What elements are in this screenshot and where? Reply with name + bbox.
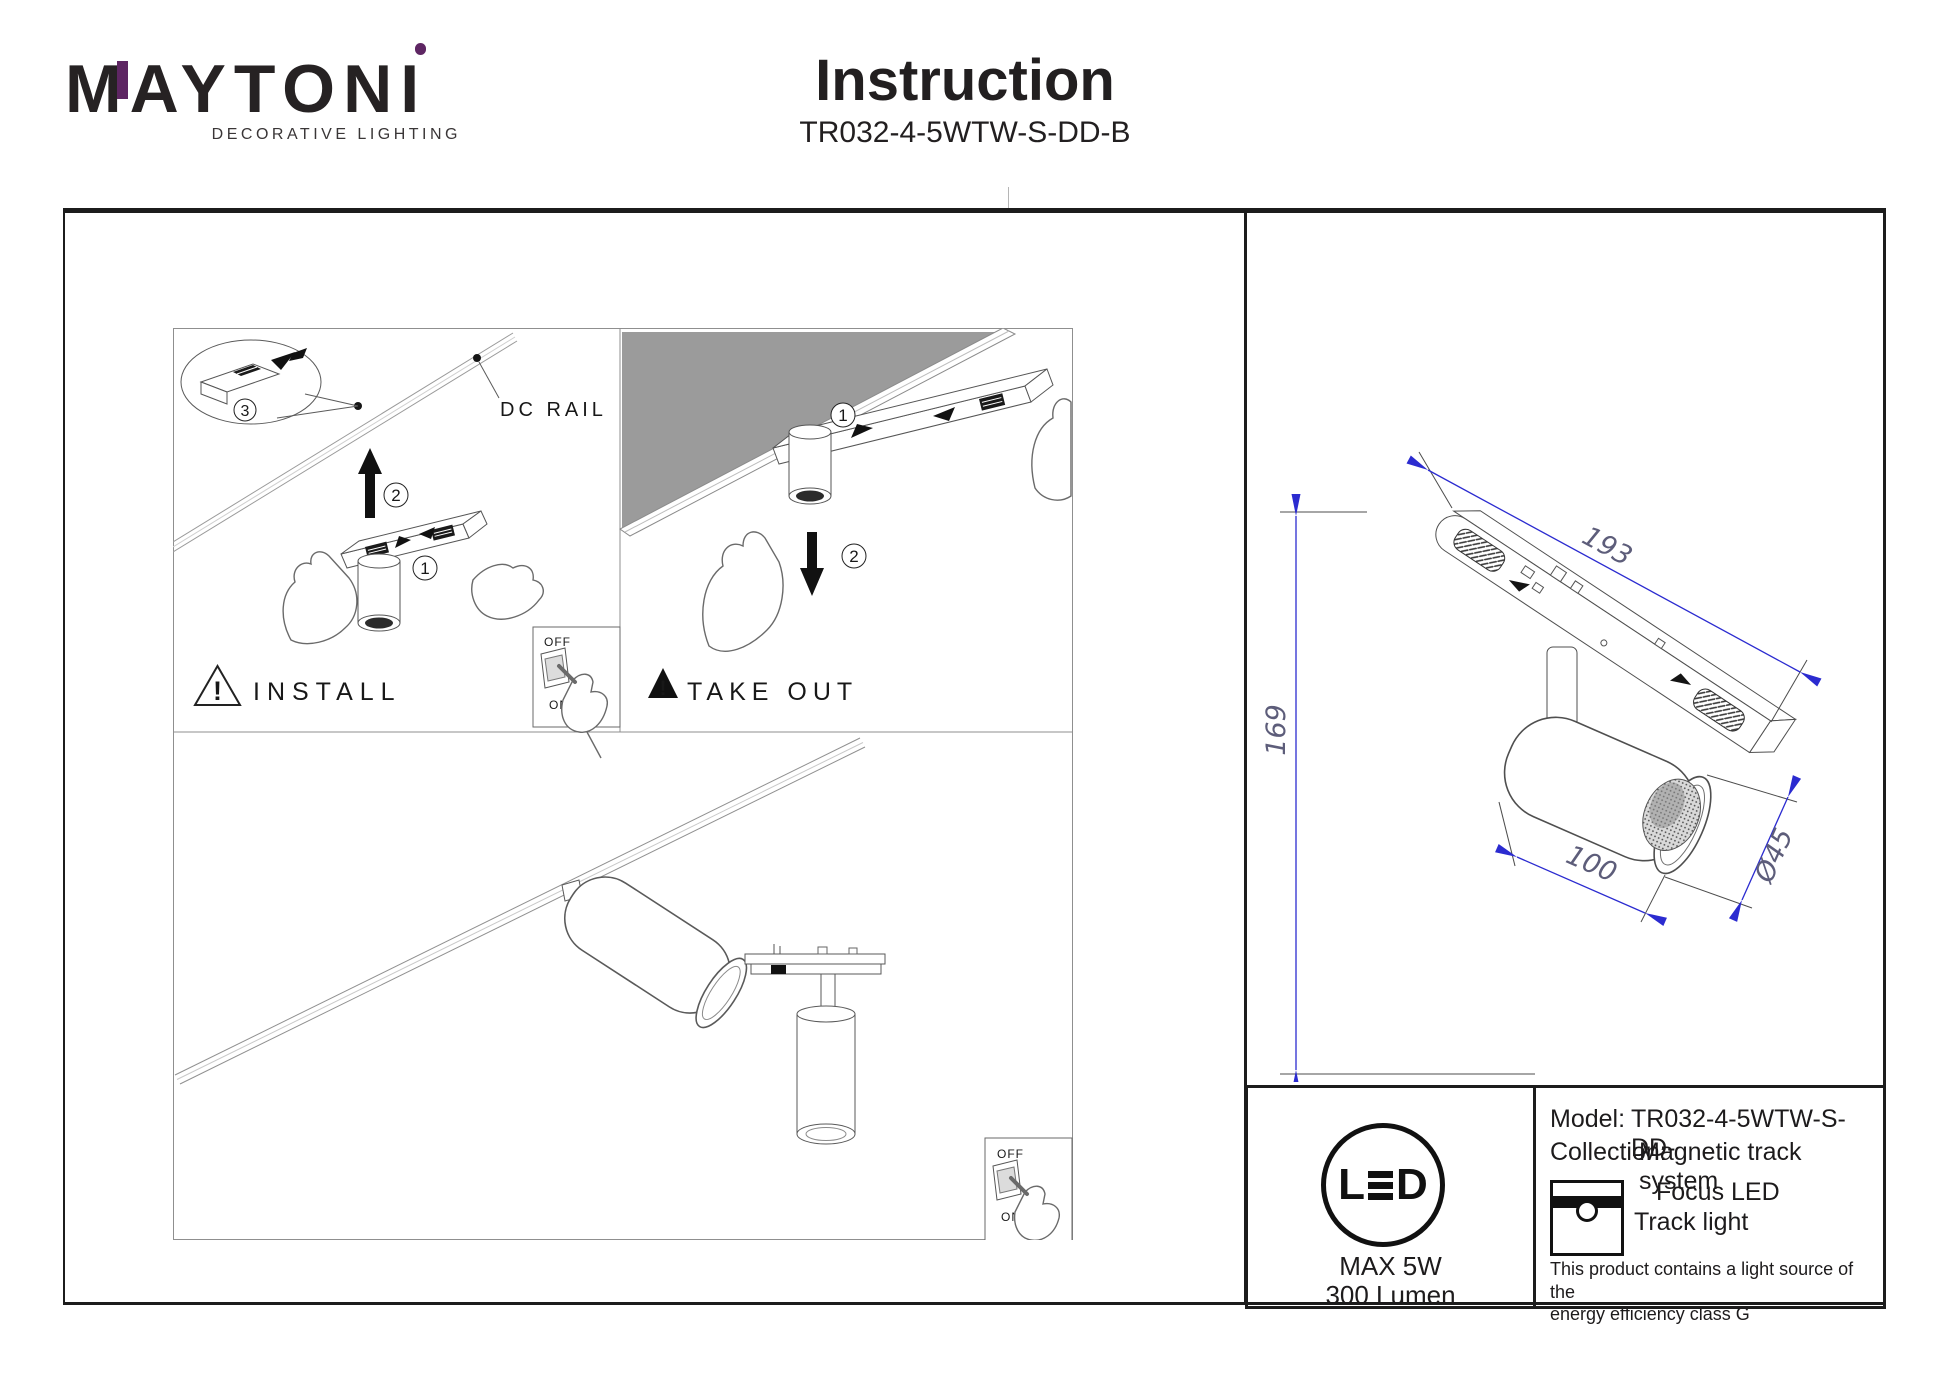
model-label: Model:: [1550, 1105, 1625, 1134]
spec-row: L D MAX 5W 300 Lumen Model: TR032-4-5WTW…: [1245, 1085, 1886, 1309]
step-1-number: 1: [838, 406, 847, 425]
dim-193: 193: [1419, 452, 1807, 722]
switch-off-inset: OFF ON: [533, 627, 620, 758]
install-label: INSTALL: [253, 678, 402, 706]
install-warning-mark: !: [213, 676, 222, 706]
product-line2: Track light: [1634, 1208, 1748, 1237]
spot-cylinder-sketch: [358, 554, 400, 631]
installation-diagram: 3 DC RAIL 2: [173, 328, 1073, 1240]
led-letter-d: D: [1396, 1160, 1428, 1210]
long-rail: [175, 738, 865, 1084]
spot-cylinder-sketch: [789, 425, 831, 504]
page-title: Instruction: [700, 52, 1230, 110]
logo-purple-stem: [117, 61, 127, 99]
max-power: MAX 5W: [1248, 1251, 1533, 1282]
logo-tagline: DECORATIVE LIGHTING: [65, 126, 461, 144]
switch-on-inset: OFF ON: [985, 1138, 1072, 1240]
fold-mark: [1008, 187, 1009, 208]
mounted-spotlight: [550, 862, 755, 1034]
model-code: TR032-4-5WTW-S-DD-B: [700, 116, 1230, 150]
dim-193-label: 193: [1577, 521, 1637, 573]
rocker-switch-icon: [993, 1160, 1021, 1200]
pendant-track-light: [745, 944, 885, 1144]
dc-rail-leader: [479, 362, 499, 398]
logo-letter-m: M: [65, 50, 130, 128]
led-spec-cell: L D MAX 5W 300 Lumen: [1248, 1088, 1536, 1306]
logo-letter-i: I: [400, 50, 427, 128]
step-2-number: 2: [391, 486, 400, 505]
magnifier-callout: 3: [181, 340, 358, 424]
arrow-down-icon: [800, 532, 824, 596]
dim-169: 169: [1261, 512, 1535, 1074]
lumen-value: 300 Lumen: [1248, 1280, 1533, 1311]
switch-off-label: OFF: [997, 1147, 1024, 1161]
led-letter-l: L: [1338, 1160, 1365, 1210]
logo-purple-dot: [415, 43, 427, 55]
led-letter-e-bars: [1368, 1171, 1393, 1200]
product-line1: Focus LED: [1656, 1178, 1780, 1207]
rail-dot: [473, 354, 481, 362]
dim-169-label: 169: [1261, 704, 1292, 756]
dim-diameter-label: Ø45: [1748, 824, 1799, 888]
energy-note: This product contains a light source of …: [1550, 1258, 1880, 1326]
model-spec-cell: Model: TR032-4-5WTW-S-DD- Collection: Ma…: [1536, 1088, 1883, 1306]
mounted-scene: OFF ON: [175, 738, 1072, 1240]
rocker-switch-icon: [541, 648, 569, 688]
led-logo-icon: L D: [1321, 1123, 1445, 1247]
track-light-pictogram-icon: [1550, 1180, 1624, 1256]
switch-off-label: OFF: [544, 635, 571, 649]
logo-letters: AYTON: [130, 51, 401, 127]
instruction-sheet: MAYTONI DECORATIVE LIGHTING Instruction …: [0, 0, 1946, 1376]
title-block: Instruction TR032-4-5WTW-S-DD-B: [700, 52, 1230, 150]
step-1-number: 1: [420, 559, 429, 578]
maytoni-logo: MAYTONI: [65, 50, 465, 128]
take-out-warning-mark: !: [660, 677, 667, 700]
arrow-up-icon: [358, 448, 382, 518]
take-out-label: TAKE OUT: [687, 678, 858, 706]
step-2-number: 2: [849, 547, 858, 566]
dimension-drawing: 169 193: [1247, 330, 1888, 1082]
take-out-step: 1 2 ! TAKE OUT: [620, 328, 1071, 706]
dc-rail-label: DC RAIL: [500, 399, 607, 421]
step-3-number: 3: [241, 403, 250, 420]
